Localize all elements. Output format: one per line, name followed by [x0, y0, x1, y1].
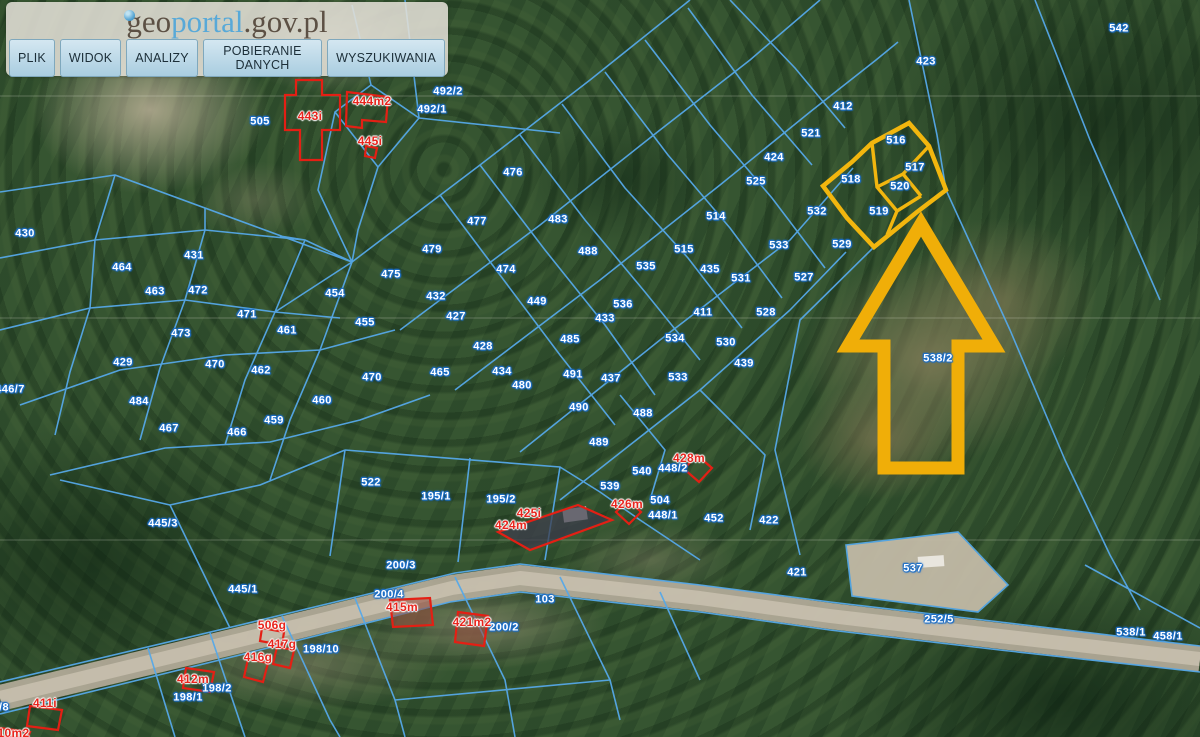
selected-parcel-label: 519: [869, 207, 889, 218]
parcel-label: 464: [112, 263, 132, 274]
selected-parcel-label: 518: [841, 175, 861, 186]
parcel-label: 476: [503, 168, 523, 179]
parcel-label: 522: [361, 478, 381, 489]
parcel-label: 473: [171, 329, 191, 340]
parcel-label: 462: [251, 366, 271, 377]
parcel-label: 470: [205, 360, 225, 371]
parcel-label: 445/1: [228, 585, 258, 596]
logo-geo: geo: [126, 4, 171, 39]
menu-item-analizy[interactable]: ANALIZY: [126, 39, 198, 77]
parcel-label: 472: [188, 286, 208, 297]
parcel-label: 483: [548, 215, 568, 226]
parcel-label: 252/5: [924, 615, 954, 626]
parcel-label: 505: [250, 117, 270, 128]
parcel-label: 535: [636, 262, 656, 273]
parcel-label: 525: [746, 177, 766, 188]
parcel-label: 463: [145, 287, 165, 298]
selected-parcel-label: 520: [890, 182, 910, 193]
parcel-label: 531: [731, 274, 751, 285]
parcel-label: 532: [807, 207, 827, 218]
parcel-label: 437: [601, 374, 621, 385]
header-panel: geoportal.gov.pl PLIK WIDOK ANALIZY POBI…: [6, 2, 448, 76]
parcel-label: 488: [578, 247, 598, 258]
parcel-label: 474: [496, 265, 516, 276]
parcel-label: 514: [706, 212, 726, 223]
parcel-label: 198/1: [173, 693, 203, 704]
parcel-label: 538/1: [1116, 628, 1146, 639]
parcel-label: 435: [700, 265, 720, 276]
parcel-label: 542: [1109, 24, 1129, 35]
parcel-label: 200/3: [386, 561, 416, 572]
parcel-label: 459: [264, 416, 284, 427]
logo-portal: portal: [171, 4, 243, 39]
parcel-label: 504: [650, 496, 670, 507]
building-label: 416g: [244, 651, 273, 663]
parcel-label: 484: [129, 397, 149, 408]
parcel-label: 475: [381, 270, 401, 281]
parcel-label: 448/1: [648, 511, 678, 522]
parcel-label: 431: [184, 251, 204, 262]
parcel-label: 452: [704, 514, 724, 525]
building-label: 444m2: [353, 95, 392, 107]
menu-item-pobieranie-danych[interactable]: POBIERANIE DANYCH: [203, 39, 322, 77]
building-label: 426m: [611, 498, 643, 510]
menu-item-plik[interactable]: PLIK: [9, 39, 55, 77]
parcel-label: 492/2: [433, 87, 463, 98]
selected-parcel-label: 516: [886, 136, 906, 147]
menu-bar: PLIK WIDOK ANALIZY POBIERANIE DANYCH WYS…: [9, 39, 445, 77]
parcel-label: 424: [764, 153, 784, 164]
parcel-label: 470: [362, 373, 382, 384]
parcel-label: 433: [595, 314, 615, 325]
building-label: 424m: [495, 519, 527, 531]
parcel-label: 432: [426, 292, 446, 303]
parcel-label: 412: [833, 102, 853, 113]
parcel-label: 489: [589, 438, 609, 449]
parcel-label: 479: [422, 245, 442, 256]
parcel-label: 533: [769, 241, 789, 252]
building-label: 410m2: [0, 727, 29, 737]
parcel-label: 536: [613, 300, 633, 311]
parcel-label: 421: [787, 568, 807, 579]
parcel-label: 423: [916, 57, 936, 68]
parcel-label: 527: [794, 273, 814, 284]
parcel-label: 455: [355, 318, 375, 329]
building-label: 445i: [358, 135, 383, 147]
parcel-label: 471: [237, 310, 257, 321]
parcel-label: 465: [430, 368, 450, 379]
parcel-label: 477: [467, 217, 487, 228]
parcel-label: 540: [632, 467, 652, 478]
labels-layer: 5424234125214245255145325335295155354355…: [0, 0, 1200, 737]
parcel-label: 485: [560, 335, 580, 346]
parcel-label: 200/2: [489, 623, 519, 634]
parcel-label: 461: [277, 326, 297, 337]
parcel-label: 538/2: [923, 354, 953, 365]
parcel-label: 422: [759, 516, 779, 527]
parcel-label: 195/2: [486, 495, 516, 506]
parcel-label: 103: [535, 595, 555, 606]
menu-item-widok[interactable]: WIDOK: [60, 39, 121, 77]
parcel-label: 530: [716, 338, 736, 349]
parcel-label: 467: [159, 424, 179, 435]
parcel-label: 533: [668, 373, 688, 384]
logo: geoportal.gov.pl: [126, 5, 327, 39]
parcel-label: 411: [694, 308, 713, 319]
parcel-label: 449: [527, 297, 547, 308]
menu-item-wyszukiwania[interactable]: WYSZUKIWANIA: [327, 39, 445, 77]
parcel-label: 534: [665, 334, 685, 345]
parcel-label: 529: [832, 240, 852, 251]
parcel-label: 488: [633, 409, 653, 420]
map-viewport[interactable]: 5424234125214245255145325335295155354355…: [0, 0, 1200, 737]
parcel-label: 427: [446, 312, 466, 323]
building-label: 443i: [298, 110, 323, 122]
building-label: 412m: [177, 673, 209, 685]
parcel-label: 537: [903, 564, 923, 575]
parcel-label: /8: [0, 703, 9, 714]
parcel-label: 429: [113, 358, 133, 369]
building-label: 415m: [386, 601, 418, 613]
building-label: 417g: [268, 638, 297, 650]
parcel-label: 428: [473, 342, 493, 353]
parcel-label: 198/10: [303, 645, 339, 656]
parcel-label: 430: [15, 229, 35, 240]
parcel-label: 490: [569, 403, 589, 414]
parcel-label: 200/4: [374, 590, 404, 601]
parcel-label: 521: [801, 129, 821, 140]
parcel-label: 454: [325, 289, 345, 300]
parcel-label: 492/1: [417, 105, 447, 116]
parcel-label: 491: [563, 370, 583, 381]
building-label: 411i: [33, 697, 57, 709]
parcel-label: 448/2: [658, 464, 688, 475]
building-label: 506g: [258, 619, 287, 631]
building-label: 421m2: [453, 616, 492, 628]
selected-parcel-label: 517: [905, 163, 925, 174]
logo-suffix: .gov.pl: [243, 4, 327, 39]
parcel-label: 528: [756, 308, 776, 319]
parcel-label: 195/1: [421, 492, 451, 503]
parcel-label: 446/7: [0, 385, 25, 396]
parcel-label: 434: [492, 367, 512, 378]
parcel-label: 515: [674, 245, 694, 256]
building-label: 428m: [673, 452, 705, 464]
parcel-label: 445/3: [148, 519, 178, 530]
parcel-label: 458/1: [1153, 632, 1183, 643]
parcel-label: 460: [312, 396, 332, 407]
parcel-label: 480: [512, 381, 532, 392]
parcel-label: 539: [600, 482, 620, 493]
parcel-label: 439: [734, 359, 754, 370]
parcel-label: 466: [227, 428, 247, 439]
